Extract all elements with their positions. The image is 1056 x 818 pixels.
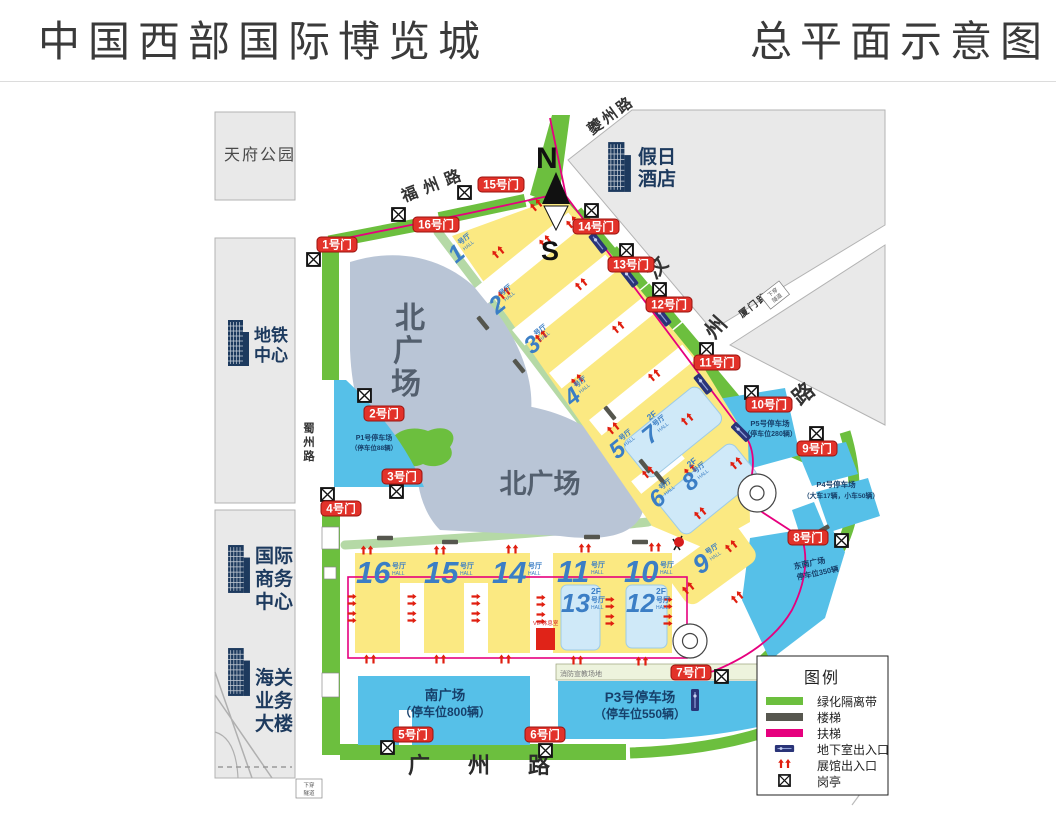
hotel-label: 假日 <box>638 145 676 168</box>
north-plaza-label: 北 <box>395 302 425 335</box>
svg-text:2F: 2F <box>591 586 601 596</box>
legend: 图例 绿化隔离带 楼梯 扶梯 地下室出入口 展馆出入口 岗亭 <box>757 656 889 795</box>
legend-stairs-icon <box>766 713 803 721</box>
svg-text:HALL: HALL <box>392 571 405 577</box>
compass-s: S <box>541 236 559 266</box>
vip-label: VIP休息室 <box>533 619 559 627</box>
north-plaza-label-2: 北广场 <box>500 469 581 499</box>
gate-6: 6号门 <box>525 727 565 742</box>
svg-text:号厅: 号厅 <box>591 560 605 569</box>
svg-text:4号门: 4号门 <box>326 502 355 516</box>
gate-4: 4号门 <box>321 501 361 516</box>
svg-text:隧道: 隧道 <box>303 789 315 797</box>
svg-text:地下室出入口: 地下室出入口 <box>817 742 889 757</box>
svg-text:路: 路 <box>303 449 315 463</box>
p5-label: P5号停车场 <box>750 418 790 428</box>
svg-text:11号门: 11号门 <box>699 356 734 370</box>
svg-text:大楼: 大楼 <box>255 712 293 735</box>
gate-8: 8号门 <box>788 530 828 545</box>
svg-text:11: 11 <box>557 554 589 589</box>
svg-text:HALL: HALL <box>528 571 541 577</box>
svg-text:号厅: 号厅 <box>392 561 406 570</box>
svg-text:10: 10 <box>624 554 658 589</box>
svg-text:号厅: 号厅 <box>656 595 670 604</box>
svg-text:号厅: 号厅 <box>660 560 674 569</box>
legend-greenbelt-icon <box>766 697 803 705</box>
svg-text:14: 14 <box>492 555 526 590</box>
svg-text:10号门: 10号门 <box>751 398 787 412</box>
gate-2: 2号门 <box>364 406 404 421</box>
svg-text:场: 场 <box>391 368 421 401</box>
gate-9: 9号门 <box>797 441 837 456</box>
gate-13: 13号门 <box>608 257 654 272</box>
page-header: 中国西部国际博览城 总平面示意图 <box>0 0 1056 82</box>
gate-16: 16号门 <box>413 217 459 232</box>
svg-text:HALL: HALL <box>656 605 669 611</box>
svg-text:中心: 中心 <box>255 590 293 613</box>
svg-text:15号门: 15号门 <box>483 178 519 192</box>
p4-label: P4号停车场 <box>816 479 856 489</box>
svg-text:7号门: 7号门 <box>676 666 705 680</box>
svg-text:HALL: HALL <box>460 571 473 577</box>
svg-text:13: 13 <box>561 588 590 618</box>
page-title: 中国西部国际博览城 <box>38 8 488 69</box>
svg-text:12: 12 <box>626 588 655 618</box>
guangzhou-road-label: 广州路 <box>408 753 588 778</box>
svg-text:2F: 2F <box>656 586 666 596</box>
svg-text:号厅: 号厅 <box>528 561 542 570</box>
svg-text:（停车位800辆）: （停车位800辆） <box>399 704 491 719</box>
svg-text:州: 州 <box>302 436 315 449</box>
gate-11: 11号门 <box>694 355 740 370</box>
legend-basement-icon <box>775 745 794 752</box>
svg-text:15: 15 <box>424 555 459 590</box>
svg-text:下穿: 下穿 <box>303 781 315 789</box>
svg-text:广: 广 <box>393 335 423 368</box>
gate-10: 10号门 <box>746 397 792 412</box>
svg-text:（停车位550辆）: （停车位550辆） <box>594 706 686 721</box>
svg-text:HALL: HALL <box>660 570 673 576</box>
hall-14-label: 14号厅HALL <box>492 555 542 590</box>
svg-text:酒店: 酒店 <box>638 167 676 190</box>
shuzhou-road-label: 蜀 <box>303 422 315 435</box>
svg-text:1号门: 1号门 <box>322 238 351 252</box>
svg-text:6号门: 6号门 <box>530 728 559 742</box>
legend-title: 图例 <box>804 669 840 687</box>
svg-text:13号门: 13号门 <box>613 258 649 272</box>
svg-text:中心: 中心 <box>254 345 288 365</box>
svg-text:16: 16 <box>356 555 391 590</box>
svg-text:商务: 商务 <box>255 567 294 590</box>
fire-education-label: 消防宣教场地 <box>560 669 602 678</box>
page-subtitle: 总平面示意图 <box>750 8 1050 69</box>
metro-label: 地铁 <box>254 325 288 345</box>
gate-15: 15号门 <box>478 177 524 192</box>
svg-text:业务: 业务 <box>255 689 294 712</box>
svg-text:岗亭: 岗亭 <box>817 774 841 789</box>
svg-text:3号门: 3号门 <box>387 470 416 484</box>
gate-3: 3号门 <box>382 469 422 484</box>
svg-text:8号门: 8号门 <box>793 531 822 545</box>
legend-booth-icon <box>779 775 790 786</box>
p3-label: P3号停车场 <box>605 689 676 705</box>
svg-text:号厅: 号厅 <box>591 595 605 604</box>
svg-text:（停车位280辆）: （停车位280辆） <box>743 429 797 438</box>
tianfu-park-label: 天府公园 <box>224 146 296 164</box>
gate-5: 5号门 <box>393 727 433 742</box>
svg-text:HALL: HALL <box>591 605 604 611</box>
p1-label: P1号停车场 <box>356 433 393 442</box>
south-tunnel-label: 下穿 隧道 <box>296 779 322 798</box>
svg-text:楼梯: 楼梯 <box>817 710 841 725</box>
svg-text:14号门: 14号门 <box>578 220 614 234</box>
svg-text:16号门: 16号门 <box>418 218 454 232</box>
gate-7: 7号门 <box>671 665 711 680</box>
gate-1: 1号门 <box>317 237 357 252</box>
customs-label: 海关 <box>255 666 293 689</box>
metro-block <box>215 238 295 503</box>
south-plaza-label: 南广场 <box>425 687 466 703</box>
site-map: N S 天府公园 地铁 中心 国际 商务 中心 海关 业务 大楼 假日 酒店 福… <box>0 0 1056 818</box>
svg-text:号厅: 号厅 <box>460 561 474 570</box>
svg-text:5号门: 5号门 <box>398 728 427 742</box>
svg-text:9号门: 9号门 <box>802 442 831 456</box>
expo-site-map-page: 中国西部国际博览城 总平面示意图 <box>0 0 1056 818</box>
svg-text:2号门: 2号门 <box>369 407 398 421</box>
vip-room <box>536 628 555 650</box>
compass-n: N <box>536 142 558 175</box>
gate-12: 12号门 <box>646 297 692 312</box>
legend-escalator-icon <box>766 729 803 737</box>
svg-text:12号门: 12号门 <box>651 298 687 312</box>
svg-text:绿化隔离带: 绿化隔离带 <box>817 694 877 709</box>
svg-text:（大车17辆，小车50辆）: （大车17辆，小车50辆） <box>803 491 879 500</box>
svg-text:HALL: HALL <box>591 570 604 576</box>
svg-text:（停车位88辆）: （停车位88辆） <box>351 443 397 452</box>
svg-text:扶梯: 扶梯 <box>817 726 841 741</box>
business-label: 国际 <box>255 545 293 567</box>
svg-text:展馆出入口: 展馆出入口 <box>817 758 877 773</box>
gate-14: 14号门 <box>573 219 619 234</box>
